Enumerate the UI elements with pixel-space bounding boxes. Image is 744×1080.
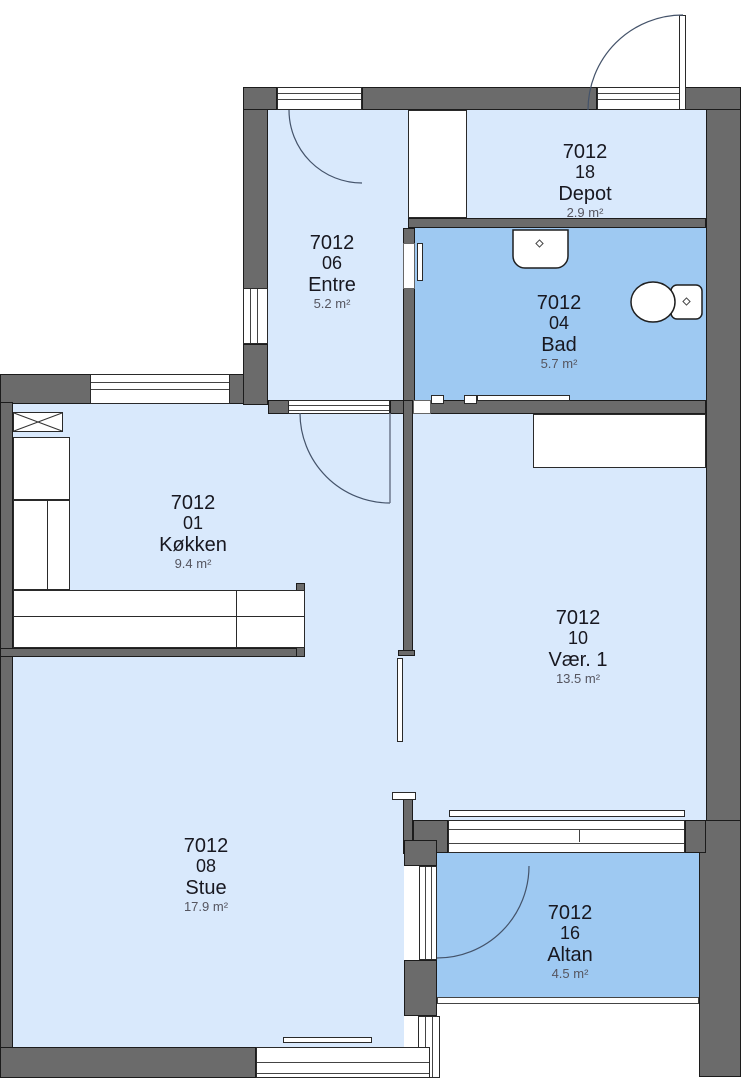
room-unit: 04 (484, 314, 634, 334)
sink (513, 230, 568, 268)
room-area: 2.9 m² (510, 206, 660, 220)
room-number: 7012 (495, 902, 645, 924)
door-arc-koekken (300, 413, 390, 503)
room-number: 7012 (257, 232, 407, 254)
room-label-altan: 7012 16 Altan 4.5 m² (495, 902, 645, 981)
room-name: Stue (131, 877, 281, 899)
room-unit: 01 (118, 514, 268, 534)
room-number: 7012 (503, 607, 653, 629)
room-unit: 16 (495, 924, 645, 944)
room-name: Entre (257, 274, 407, 296)
floor-plan: 7012 06 Entre 5.2 m² 7012 18 Depot 2.9 m… (0, 0, 744, 1080)
room-area: 5.2 m² (257, 297, 407, 311)
room-number: 7012 (484, 292, 634, 314)
room-label-koekken: 7012 01 Køkken 9.4 m² (118, 492, 268, 571)
room-area: 17.9 m² (131, 900, 281, 914)
room-label-entre: 7012 06 Entre 5.2 m² (257, 232, 407, 311)
room-area: 4.5 m² (495, 967, 645, 981)
room-label-vaer1: 7012 10 Vær. 1 13.5 m² (503, 607, 653, 686)
room-label-stue: 7012 08 Stue 17.9 m² (131, 835, 281, 914)
door-arc-entrance (588, 15, 683, 110)
room-area: 5.7 m² (484, 357, 634, 371)
room-unit: 10 (503, 629, 653, 649)
room-unit: 18 (510, 163, 660, 183)
room-name: Køkken (118, 534, 268, 556)
room-label-depot: 7012 18 Depot 2.9 m² (510, 141, 660, 220)
door-arc-entre (289, 110, 362, 183)
room-area: 9.4 m² (118, 557, 268, 571)
room-number: 7012 (118, 492, 268, 514)
room-name: Vær. 1 (503, 649, 653, 671)
toilet-bowl (631, 282, 675, 322)
room-number: 7012 (510, 141, 660, 163)
room-name: Altan (495, 944, 645, 966)
room-name: Depot (510, 183, 660, 205)
room-area: 13.5 m² (503, 672, 653, 686)
room-unit: 06 (257, 254, 407, 274)
room-name: Bad (484, 334, 634, 356)
room-number: 7012 (131, 835, 281, 857)
room-unit: 08 (131, 857, 281, 877)
room-label-bad: 7012 04 Bad 5.7 m² (484, 292, 634, 371)
